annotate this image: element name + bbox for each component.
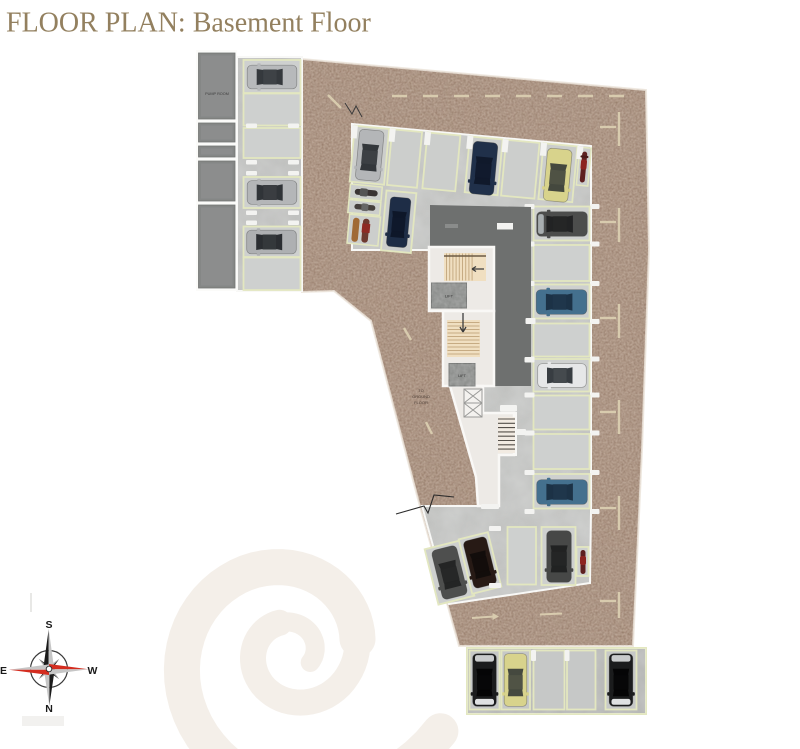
svg-text:GROUND: GROUND [412, 394, 430, 399]
svg-text:LIFT: LIFT [445, 294, 454, 299]
svg-text:TO: TO [418, 388, 423, 393]
svg-text:LIFT: LIFT [458, 374, 466, 378]
svg-text:FLOOR PLAN: Basement Floor: FLOOR PLAN: Basement Floor [6, 8, 371, 39]
svg-text:FLOOR: FLOOR [414, 400, 428, 405]
svg-text:N: N [45, 703, 53, 715]
svg-text:S: S [45, 619, 52, 631]
svg-text:PUMP ROOM: PUMP ROOM [205, 92, 229, 96]
svg-text:E: E [0, 665, 7, 677]
svg-text:W: W [88, 665, 98, 677]
